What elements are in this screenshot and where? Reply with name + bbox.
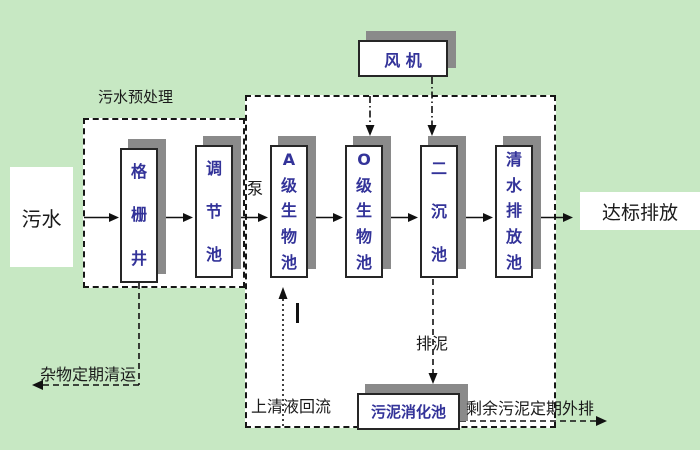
sludge-digestion-tank-box: 污泥消化池 bbox=[357, 393, 460, 430]
sludge-discharge-label: 排泥 bbox=[416, 335, 448, 353]
discharge-label: 达标排放 bbox=[602, 198, 678, 225]
supernatant-return-label: 上清液回流 bbox=[251, 398, 331, 416]
influent-label: 污水 bbox=[22, 203, 62, 232]
grid-well-box: 格栅井 bbox=[120, 148, 158, 283]
fan-box: 风 机 bbox=[358, 40, 448, 77]
discharge-box: 达标排放 bbox=[580, 192, 700, 230]
secondary-clarifier-box: 二沉池 bbox=[420, 145, 458, 278]
a-bio-tank-label: A级生物池 bbox=[272, 147, 306, 276]
excess-sludge-label: 剩余污泥定期外排 bbox=[466, 400, 594, 418]
influent-box: 污水 bbox=[10, 167, 73, 267]
regulating-tank-box: 调节池 bbox=[195, 145, 233, 278]
fan-label: 风 机 bbox=[360, 42, 446, 75]
clear-water-tank-box: 清水排放池 bbox=[495, 145, 533, 278]
regulating-tank-label: 调节池 bbox=[197, 147, 231, 276]
secondary-clarifier-label: 二沉池 bbox=[422, 147, 456, 276]
o-bio-tank-label: O级生物池 bbox=[347, 147, 381, 276]
debris-removal-label: 杂物定期清运 bbox=[40, 366, 136, 384]
a-bio-tank-box: A级生物池 bbox=[270, 145, 308, 278]
pump-label: 泵 bbox=[247, 180, 263, 198]
clear-water-tank-label: 清水排放池 bbox=[497, 147, 531, 276]
process-flow-diagram: 污水 风 机 格栅井 调节池 A级生物池 O级生物池 二沉池 清水排放池 污泥消… bbox=[0, 0, 700, 450]
o-bio-tank-box: O级生物池 bbox=[345, 145, 383, 278]
grid-well-label: 格栅井 bbox=[122, 150, 156, 281]
sludge-digestion-tank-label: 污泥消化池 bbox=[359, 395, 458, 428]
pretreatment-title: 污水预处理 bbox=[98, 89, 173, 106]
